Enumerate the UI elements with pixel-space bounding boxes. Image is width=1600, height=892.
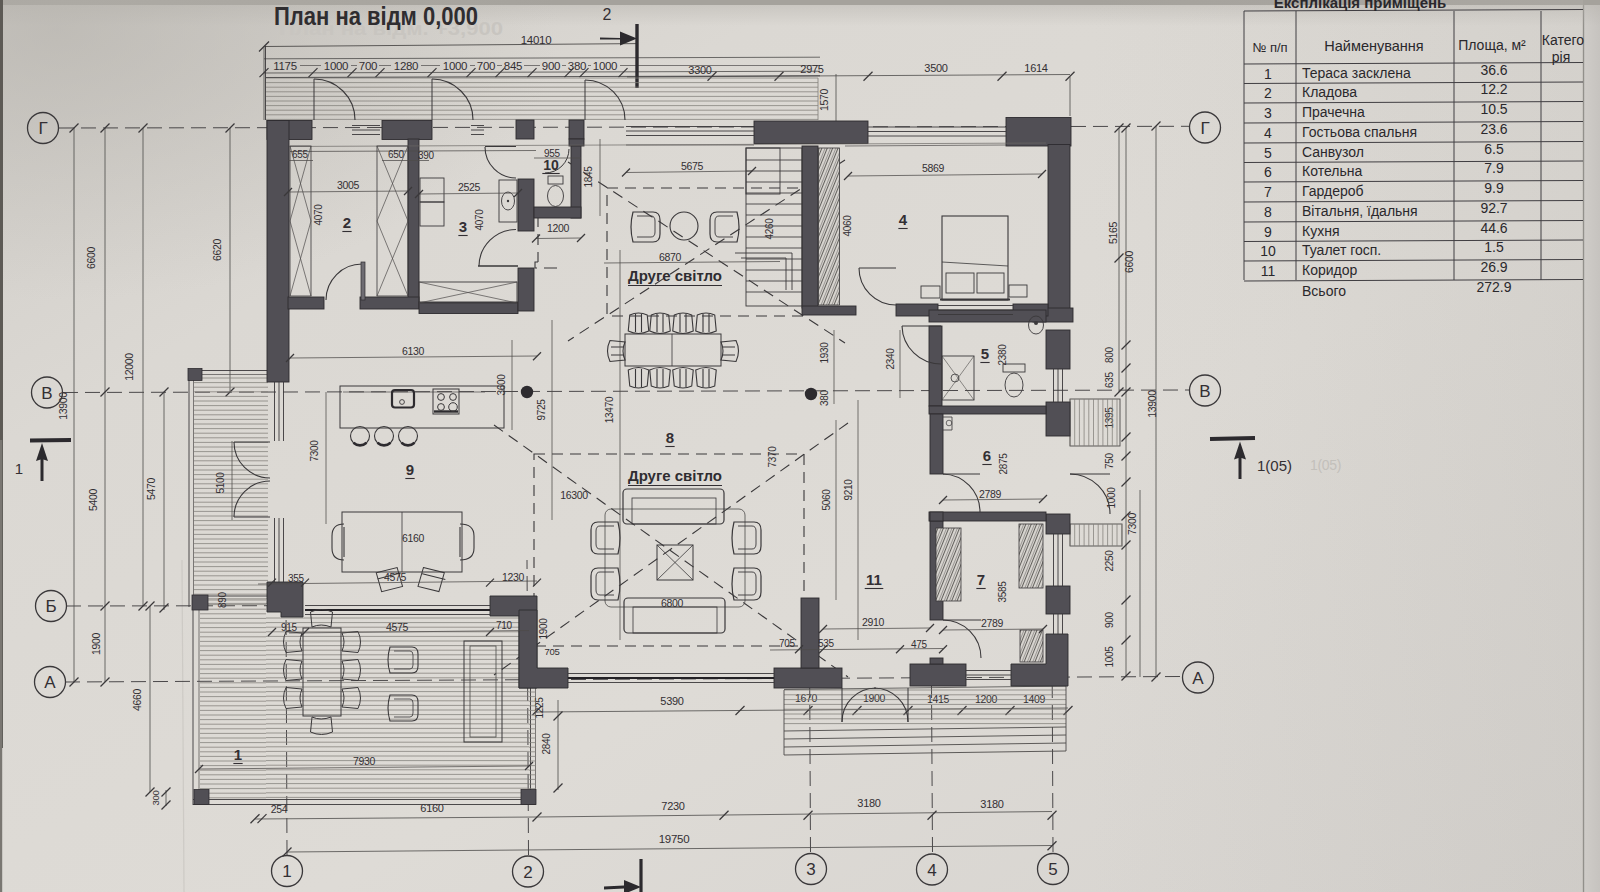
svg-text:300: 300 [150,791,161,806]
svg-text:А: А [1192,669,1204,688]
svg-text:655: 655 [292,149,309,160]
svg-text:5: 5 [1048,860,1057,879]
svg-text:2380: 2380 [997,344,1008,366]
svg-text:4070: 4070 [313,204,324,226]
svg-text:В: В [1199,382,1210,401]
svg-text:10.5: 10.5 [1480,101,1507,117]
svg-text:7: 7 [977,571,985,588]
svg-text:705: 705 [545,646,560,657]
svg-text:1000: 1000 [443,60,467,72]
svg-text:23.6: 23.6 [1480,121,1507,137]
svg-text:4: 4 [1264,125,1272,141]
svg-text:635: 635 [1104,371,1115,388]
svg-text:4575: 4575 [386,621,409,633]
svg-text:2789: 2789 [981,617,1004,629]
svg-text:Санвузол: Санвузол [1302,144,1364,160]
svg-text:900: 900 [1104,611,1115,628]
svg-text:9.9: 9.9 [1484,180,1504,196]
svg-text:1: 1 [282,862,291,881]
svg-text:44.6: 44.6 [1480,220,1507,236]
svg-text:890: 890 [217,591,228,608]
svg-text:4260: 4260 [764,218,775,240]
svg-text:1000: 1000 [593,60,617,72]
svg-text:8: 8 [666,429,674,446]
svg-text:2910: 2910 [862,616,885,628]
svg-text:1(05): 1(05) [1257,457,1292,474]
svg-text:710: 710 [496,620,513,631]
svg-text:7230: 7230 [661,800,684,812]
svg-text:3585: 3585 [997,581,1008,603]
svg-text:14010: 14010 [521,34,551,46]
svg-text:5060: 5060 [821,489,832,511]
svg-text:11: 11 [1261,263,1276,279]
svg-text:5: 5 [981,345,989,362]
svg-text:7: 7 [1264,184,1272,200]
svg-text:4070: 4070 [474,209,485,231]
svg-text:7300: 7300 [1126,512,1138,535]
svg-text:5: 5 [1264,145,1272,161]
svg-text:1: 1 [234,746,242,763]
svg-text:Г: Г [38,119,47,138]
svg-text:1005: 1005 [1104,646,1115,668]
svg-text:Площа, м²: Площа, м² [1458,37,1526,53]
svg-text:№ п/п: № п/п [1252,40,1287,55]
svg-text:2840: 2840 [541,733,552,755]
svg-text:10: 10 [543,157,559,173]
svg-text:1900: 1900 [538,618,549,640]
svg-text:8: 8 [1264,204,1272,220]
svg-text:1395: 1395 [1104,407,1115,429]
svg-text:6600: 6600 [85,246,97,269]
svg-text:26.9: 26.9 [1480,259,1507,275]
svg-text:700: 700 [359,60,377,72]
svg-text:Найменування: Найменування [1324,38,1423,54]
svg-text:Котельна: Котельна [1302,163,1362,179]
svg-text:750: 750 [1104,452,1115,469]
svg-text:2: 2 [343,214,351,231]
svg-text:6130: 6130 [402,345,425,357]
svg-text:5470: 5470 [145,477,157,500]
svg-text:3600: 3600 [496,374,507,396]
svg-text:92.7: 92.7 [1480,200,1507,216]
svg-text:Б: Б [45,597,56,616]
svg-text:9: 9 [406,461,414,478]
svg-text:800: 800 [1104,346,1115,363]
svg-text:4660: 4660 [131,688,143,711]
svg-text:9210: 9210 [843,479,854,501]
svg-text:1(05): 1(05) [1310,457,1341,473]
svg-text:Експлікація приміщень: Експлікація приміщень [1274,0,1447,11]
svg-text:1.5: 1.5 [1484,239,1504,255]
svg-text:Кладова: Кладова [1302,84,1357,100]
svg-text:650: 650 [388,149,405,160]
svg-text:1280: 1280 [394,60,418,72]
svg-text:6160: 6160 [420,802,443,814]
svg-text:3: 3 [806,860,815,879]
svg-text:7300: 7300 [309,440,320,462]
svg-text:13470: 13470 [604,396,615,423]
svg-text:13900: 13900 [1146,390,1158,418]
svg-text:4060: 4060 [842,215,853,237]
svg-text:рія: рія [1552,49,1570,65]
svg-text:3500: 3500 [924,62,947,74]
svg-text:2875: 2875 [998,453,1009,475]
svg-text:3180: 3180 [980,798,1003,810]
svg-text:475: 475 [911,639,928,650]
svg-text:2: 2 [1264,85,1272,101]
svg-text:9725: 9725 [536,399,547,421]
svg-text:1930: 1930 [819,342,830,364]
svg-text:5869: 5869 [922,162,945,174]
svg-text:1900: 1900 [863,692,886,704]
svg-text:Г: Г [1200,119,1209,138]
svg-text:6600: 6600 [1123,250,1135,273]
svg-text:13900: 13900 [57,392,69,420]
svg-text:Кухня: Кухня [1302,223,1339,239]
svg-text:Гостьова спальня: Гостьова спальня [1302,124,1417,140]
svg-text:Коридор: Коридор [1302,262,1358,278]
svg-text:19750: 19750 [659,833,689,845]
svg-text:5390: 5390 [660,695,683,707]
svg-text:6800: 6800 [661,597,684,609]
svg-text:5675: 5675 [681,160,704,172]
svg-text:1: 1 [1264,66,1272,82]
svg-text:1200: 1200 [547,222,570,234]
svg-text:705: 705 [779,638,796,649]
svg-text:4: 4 [899,211,908,228]
svg-text:535: 535 [818,638,835,649]
svg-text:1670: 1670 [795,692,818,704]
svg-text:3: 3 [1264,105,1272,121]
svg-text:Катего: Катего [1542,32,1584,48]
svg-text:9: 9 [1264,224,1272,240]
svg-text:3005: 3005 [337,179,360,191]
svg-text:6620: 6620 [211,238,223,261]
svg-text:380: 380 [568,60,586,72]
svg-text:2250: 2250 [1104,550,1115,572]
svg-text:7.9: 7.9 [1484,160,1504,176]
svg-text:1570: 1570 [818,88,830,111]
svg-text:5100: 5100 [215,472,226,494]
svg-text:2975: 2975 [800,63,823,75]
svg-text:Друге світло: Друге світло [628,467,722,484]
svg-text:3: 3 [459,218,467,235]
svg-text:2789: 2789 [979,488,1002,500]
svg-text:Всього: Всього [1302,283,1346,299]
svg-text:16300: 16300 [560,489,588,501]
svg-text:380: 380 [819,389,830,406]
svg-text:Вітальня, їдальня: Вітальня, їдальня [1302,203,1418,219]
svg-text:915: 915 [281,622,298,633]
svg-text:5400: 5400 [87,488,99,511]
svg-text:1000: 1000 [324,60,348,72]
svg-text:2: 2 [603,6,612,23]
svg-text:6: 6 [983,447,991,464]
svg-text:355: 355 [288,573,305,584]
svg-text:2340: 2340 [885,348,896,370]
svg-text:6: 6 [1264,164,1272,180]
svg-text:План на відм 0,000: План на відм 0,000 [274,1,478,31]
svg-text:12000: 12000 [123,353,135,381]
svg-text:700: 700 [477,60,495,72]
svg-text:Прачечна: Прачечна [1302,104,1365,120]
svg-text:1: 1 [15,460,23,477]
svg-text:2: 2 [523,863,532,882]
svg-text:Тераса засклена: Тераса засклена [1302,65,1411,81]
svg-text:3180: 3180 [857,797,880,809]
svg-text:6160: 6160 [402,532,425,544]
svg-text:6.5: 6.5 [1484,141,1504,157]
svg-text:845: 845 [504,60,522,72]
svg-text:390: 390 [418,150,435,161]
svg-text:1175: 1175 [273,60,297,72]
svg-text:3300: 3300 [688,64,711,76]
svg-text:36.6: 36.6 [1480,62,1507,78]
svg-text:12.2: 12.2 [1480,81,1507,97]
svg-text:7370: 7370 [767,446,778,468]
svg-text:7930: 7930 [353,755,376,767]
svg-text:4575: 4575 [384,571,407,583]
svg-text:272.9: 272.9 [1476,279,1511,295]
svg-text:1000: 1000 [1106,487,1117,509]
svg-text:Друге світло: Друге світло [628,267,722,284]
svg-text:11: 11 [866,571,882,588]
svg-text:2525: 2525 [458,181,481,193]
svg-text:900: 900 [542,60,560,72]
svg-text:Туалет госп.: Туалет госп. [1302,242,1381,258]
svg-text:1900: 1900 [90,632,102,655]
svg-text:А: А [44,673,56,692]
svg-text:1614: 1614 [1024,62,1047,74]
svg-text:В: В [41,384,52,403]
svg-text:10: 10 [1260,243,1276,259]
svg-text:1845: 1845 [583,166,594,188]
svg-text:4: 4 [927,861,936,880]
svg-text:6870: 6870 [659,251,682,263]
svg-text:5165: 5165 [1107,221,1119,244]
svg-text:1230: 1230 [502,571,525,583]
svg-text:Гардероб: Гардероб [1302,183,1364,199]
